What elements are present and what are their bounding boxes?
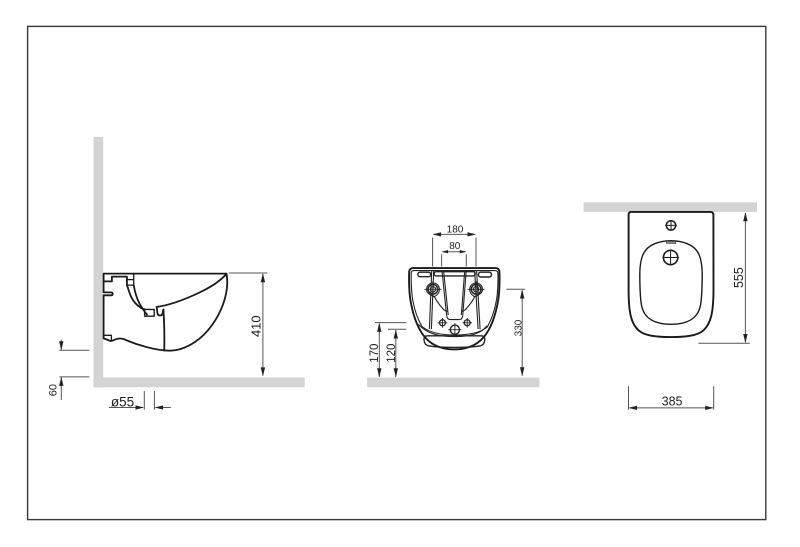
svg-text:80: 80 xyxy=(449,241,461,252)
svg-text:385: 385 xyxy=(662,394,683,408)
svg-text:ø55: ø55 xyxy=(111,395,134,410)
svg-text:410: 410 xyxy=(249,315,264,337)
svg-text:330: 330 xyxy=(513,319,524,336)
svg-text:180: 180 xyxy=(447,224,464,235)
svg-text:555: 555 xyxy=(732,267,746,288)
svg-text:120: 120 xyxy=(386,344,398,363)
svg-text:60: 60 xyxy=(48,384,60,396)
svg-text:170: 170 xyxy=(369,344,381,363)
